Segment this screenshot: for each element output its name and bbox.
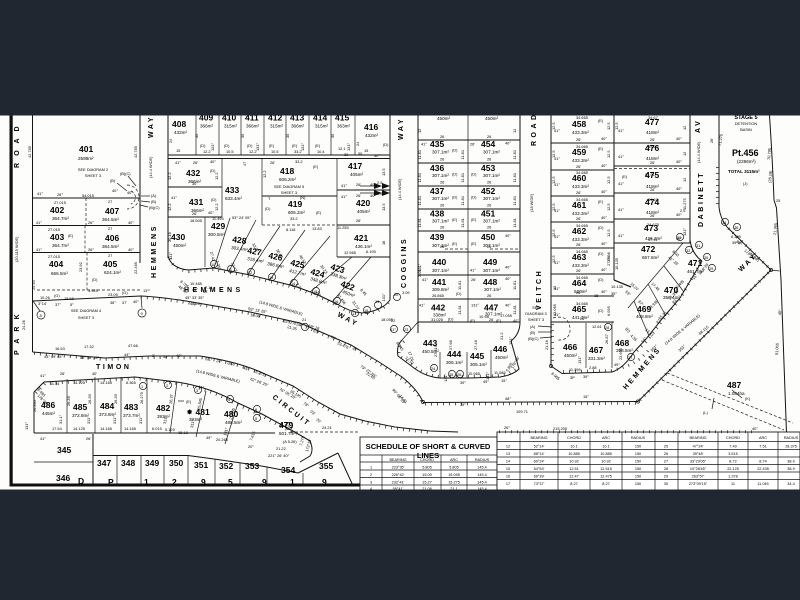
svg-text:69°39': 69°39' [534, 475, 545, 479]
svg-text:RADIUS: RADIUS [784, 436, 799, 440]
svg-text:(A): (A) [530, 324, 536, 329]
svg-text:34.675: 34.675 [647, 222, 659, 227]
svg-text:307.1m²: 307.1m² [483, 196, 500, 201]
svg-text:11.81: 11.81 [512, 305, 517, 314]
svg-text:354: 354 [281, 465, 295, 475]
svg-text:12.5: 12.5 [614, 122, 619, 130]
svg-text:5: 5 [255, 416, 257, 421]
svg-text:9: 9 [141, 311, 143, 316]
svg-text:150: 150 [635, 452, 641, 456]
svg-text:11.81: 11.81 [512, 218, 517, 227]
svg-text:407: 407 [105, 206, 119, 216]
svg-text:(D): (D) [471, 194, 477, 199]
svg-text:P: P [108, 477, 114, 487]
svg-text:450: 450 [481, 232, 495, 242]
svg-text:15: 15 [176, 148, 180, 153]
svg-text:3.515: 3.515 [728, 452, 738, 456]
svg-text:472: 472 [641, 244, 655, 254]
svg-text:145.4: 145.4 [477, 481, 487, 485]
svg-text:12.565: 12.565 [344, 250, 356, 255]
svg-text:26.87: 26.87 [604, 334, 609, 344]
svg-text:3.945: 3.945 [88, 288, 98, 293]
svg-text:23.935: 23.935 [618, 348, 623, 360]
svg-text:11: 11 [228, 267, 232, 272]
svg-text:49°: 49° [206, 435, 212, 440]
svg-text:54.015: 54.015 [82, 193, 94, 198]
svg-text:39°07': 39°07' [732, 240, 743, 245]
svg-text:42.785: 42.785 [133, 146, 138, 158]
svg-text:26': 26' [650, 137, 655, 142]
svg-text:7.49: 7.49 [729, 445, 736, 449]
svg-text:40°: 40° [505, 264, 511, 269]
svg-text:7: 7 [287, 424, 289, 429]
svg-text:12: 12 [682, 126, 687, 130]
svg-text:21.2: 21.2 [499, 332, 504, 340]
svg-text:WAY: WAY [398, 117, 405, 140]
svg-text:41°: 41° [341, 194, 347, 199]
svg-text:363m²: 363m² [337, 124, 350, 129]
svg-text:26': 26' [580, 316, 585, 321]
svg-text:27.98: 27.98 [448, 340, 453, 350]
svg-text:1: 1 [144, 477, 149, 487]
svg-text:21.22: 21.22 [276, 446, 286, 451]
svg-text:59° 48' 15°: 59° 48' 15° [80, 355, 99, 360]
svg-text:41°: 41° [40, 373, 46, 378]
svg-text:26': 26' [193, 160, 198, 165]
svg-text:(D): (D) [598, 308, 604, 313]
svg-text:20.265: 20.265 [216, 437, 228, 442]
svg-text:450m²: 450m² [437, 116, 450, 121]
svg-text:41°: 41° [175, 160, 181, 165]
svg-text:(D): (D) [456, 291, 462, 296]
svg-text:31.1°: 31.1° [58, 414, 63, 424]
svg-text:40': 40' [92, 371, 97, 376]
svg-text:COGGINS: COGGINS [401, 237, 408, 288]
svg-text:8.72: 8.72 [729, 460, 736, 464]
svg-text:12.5: 12.5 [606, 229, 611, 237]
svg-text:40°: 40° [505, 140, 511, 145]
svg-text:21.365: 21.365 [772, 223, 778, 235]
svg-text:40°: 40° [601, 241, 607, 246]
svg-text:22: 22 [391, 318, 395, 323]
svg-text:(B)(C): (B)(C) [528, 336, 539, 341]
svg-text:40°: 40° [513, 318, 519, 323]
svg-text:34.665: 34.665 [576, 115, 588, 120]
svg-text:40°: 40° [128, 247, 134, 252]
svg-text:307.1m²: 307.1m² [432, 149, 449, 154]
svg-text:26: 26 [457, 372, 461, 377]
svg-text:15: 15 [552, 286, 557, 290]
svg-text:8.27: 8.27 [570, 482, 577, 486]
svg-text:(18 WIDE): (18 WIDE) [529, 193, 534, 212]
svg-text:307.1m²: 307.1m² [483, 219, 500, 224]
svg-text:403: 403 [50, 232, 64, 242]
svg-text:(E): (E) [598, 118, 604, 123]
svg-text:11.81: 11.81 [460, 196, 465, 205]
svg-text:DABINETT: DABINETT [698, 171, 705, 227]
svg-text:11.275: 11.275 [682, 198, 687, 210]
svg-text:432: 432 [186, 168, 200, 178]
svg-text:40°: 40° [133, 299, 139, 304]
svg-text:401: 401 [79, 144, 93, 154]
svg-text:488.5m²: 488.5m² [225, 420, 242, 425]
svg-text:315m²: 315m² [224, 124, 237, 129]
svg-text:22.465: 22.465 [133, 262, 138, 274]
svg-text:(E): (E) [269, 143, 275, 148]
svg-text:41°: 41° [36, 247, 42, 252]
svg-text:307.1m²: 307.1m² [483, 149, 500, 154]
svg-text:404: 404 [49, 259, 63, 269]
svg-text:34.665: 34.665 [576, 249, 588, 254]
svg-text:150: 150 [635, 445, 641, 449]
svg-text:(E): (E) [186, 399, 192, 404]
svg-text:8: 8 [40, 313, 42, 318]
svg-text:12.61: 12.61 [592, 324, 602, 329]
svg-text:16.53: 16.53 [55, 346, 65, 351]
svg-text:33.2: 33.2 [295, 159, 303, 164]
svg-text:487: 487 [727, 380, 741, 390]
svg-text:43° 09' 45°: 43° 09' 45° [44, 354, 63, 359]
svg-text:435: 435 [430, 139, 444, 149]
svg-text:40°: 40° [676, 159, 682, 164]
svg-text:64°53': 64°53' [534, 467, 545, 471]
svg-text:14.165: 14.165 [124, 426, 136, 431]
svg-text:12.2: 12.2 [167, 172, 172, 180]
svg-text:307.1m²: 307.1m² [483, 173, 500, 178]
svg-text:(20.115 WIDE): (20.115 WIDE) [14, 236, 19, 262]
svg-text:11: 11 [731, 482, 735, 486]
svg-text:34.4: 34.4 [787, 482, 794, 486]
svg-text:TOTAL 3115m²: TOTAL 3115m² [728, 169, 760, 174]
svg-text:131°: 131° [255, 143, 260, 151]
svg-text:12.5: 12.5 [606, 122, 611, 130]
svg-text:14.165: 14.165 [100, 426, 112, 431]
svg-text:9: 9 [322, 477, 327, 487]
svg-text:345: 345 [57, 445, 71, 455]
svg-text:331.3m²: 331.3m² [588, 356, 605, 361]
svg-text:11.81: 11.81 [460, 150, 465, 159]
svg-text:24.21: 24.21 [322, 425, 332, 430]
svg-text:40°: 40° [676, 136, 682, 141]
svg-text:12.5: 12.5 [551, 203, 556, 211]
svg-text:606.2m²: 606.2m² [279, 177, 296, 182]
svg-text:11.81: 11.81 [512, 281, 517, 290]
svg-text:437: 437 [430, 186, 444, 196]
svg-text:38.9: 38.9 [787, 467, 794, 471]
svg-text:29: 29 [664, 475, 668, 479]
svg-text:34.665: 34.665 [576, 197, 588, 202]
svg-text:11.81: 11.81 [460, 173, 465, 182]
svg-text:366m²: 366m² [200, 124, 213, 129]
svg-text:1: 1 [290, 477, 295, 487]
svg-text:307.1m²: 307.1m² [432, 268, 449, 273]
svg-text:ROAD: ROAD [531, 111, 538, 146]
svg-text:40°: 40° [601, 189, 607, 194]
svg-text:12: 12 [506, 445, 510, 449]
svg-text:34.67: 34.67 [648, 144, 658, 149]
svg-text:448: 448 [483, 277, 497, 287]
svg-text:41°: 41° [171, 195, 177, 200]
svg-text:350: 350 [169, 458, 183, 468]
svg-text:27.48: 27.48 [473, 340, 478, 350]
svg-text:34.665: 34.665 [576, 144, 588, 149]
svg-text:1: 1 [141, 384, 143, 389]
svg-text:SHEET 3: SHEET 3 [85, 173, 101, 178]
svg-text:49°: 49° [614, 362, 620, 367]
svg-text:223°35': 223°35' [392, 466, 405, 470]
svg-text:60°24': 60°24' [534, 460, 545, 464]
svg-text:11.81: 11.81 [512, 196, 517, 205]
svg-text:17.54: 17.54 [52, 426, 63, 431]
svg-text:440: 440 [432, 257, 446, 267]
svg-text:449: 449 [483, 257, 497, 267]
svg-text:416: 416 [364, 122, 378, 132]
svg-text:26.275: 26.275 [139, 392, 144, 404]
svg-text:27: 27 [664, 460, 668, 464]
svg-text:(B): (B) [151, 199, 157, 204]
svg-text:40°: 40° [112, 188, 118, 193]
svg-text:(E): (E) [452, 241, 458, 246]
svg-text:(N): (N) [300, 195, 306, 200]
svg-text:418: 418 [280, 166, 294, 176]
svg-text:15°: 15° [501, 378, 507, 383]
svg-text:3.09: 3.09 [417, 269, 422, 277]
svg-text:37°: 37° [55, 302, 61, 307]
svg-text:454: 454 [481, 139, 495, 149]
svg-text:37.96: 37.96 [606, 252, 611, 262]
svg-text:91.065: 91.065 [774, 343, 780, 355]
svg-text:352: 352 [219, 461, 233, 471]
svg-text:41°: 41° [618, 207, 624, 212]
svg-text:408: 408 [172, 119, 186, 129]
svg-text:ARC: ARC [450, 458, 458, 462]
svg-text:22.125: 22.125 [727, 467, 739, 471]
svg-text:88°14': 88°14' [534, 452, 545, 456]
svg-text:2: 2 [172, 477, 177, 487]
svg-text:CHORD: CHORD [726, 436, 740, 440]
svg-text:450m²: 450m² [173, 243, 186, 248]
svg-text:41°: 41° [618, 181, 624, 186]
svg-text:131°: 131° [346, 143, 351, 151]
svg-text:(G): (G) [54, 293, 60, 298]
svg-text:28: 28 [605, 325, 609, 330]
svg-text:14.125: 14.125 [73, 426, 85, 431]
svg-text:19: 19 [375, 299, 379, 304]
svg-text:10°28'45": 10°28'45" [690, 467, 707, 471]
svg-text:(E): (E) [496, 318, 502, 323]
svg-text:12.5: 12.5 [606, 203, 611, 211]
svg-text:26': 26' [576, 268, 581, 273]
svg-text:5.805: 5.805 [422, 466, 432, 470]
svg-text:37.11: 37.11 [648, 237, 657, 242]
svg-text:17.055: 17.055 [500, 313, 512, 318]
svg-text:15: 15 [594, 293, 598, 298]
svg-text:145.4: 145.4 [477, 473, 487, 477]
svg-text:RADIUS: RADIUS [631, 436, 646, 440]
svg-text:445m²: 445m² [42, 411, 55, 416]
svg-text:40°: 40° [505, 233, 511, 238]
svg-text:BASIN: BASIN [740, 127, 752, 132]
svg-text:307.1m²: 307.1m² [432, 196, 449, 201]
svg-text:11.81: 11.81 [460, 218, 465, 227]
svg-text:666.5m²: 666.5m² [51, 271, 68, 276]
svg-text:40°: 40° [505, 302, 511, 307]
svg-text:483: 483 [124, 402, 138, 412]
svg-text:12.2: 12.2 [214, 172, 219, 180]
svg-text:34.665: 34.665 [576, 170, 588, 175]
svg-text:27: 27 [108, 253, 112, 258]
svg-text:53° 24' 05°: 53° 24' 05° [232, 215, 251, 220]
svg-text:2.88: 2.88 [589, 365, 597, 370]
svg-text:41°: 41° [618, 233, 624, 238]
svg-text:20°: 20° [248, 444, 254, 449]
svg-text:11.81: 11.81 [417, 150, 422, 159]
svg-text:40°: 40° [374, 153, 380, 158]
svg-text:(D): (D) [92, 277, 98, 282]
svg-text:364.5m²: 364.5m² [102, 244, 119, 249]
svg-text:12: 12 [417, 129, 422, 133]
svg-text:215.205: 215.205 [553, 426, 567, 431]
svg-text:433.3m²: 433.3m² [572, 184, 589, 189]
svg-text:232°41': 232°41' [392, 481, 405, 485]
svg-text:307.1m²: 307.1m² [432, 173, 449, 178]
svg-text:SEE DIAGRAM 5: SEE DIAGRAM 5 [274, 184, 304, 189]
svg-text:(14.4 WIDE): (14.4 WIDE) [696, 141, 701, 163]
svg-text:17: 17 [506, 482, 510, 486]
svg-text:1.378: 1.378 [728, 475, 738, 479]
svg-text:12: 12 [682, 152, 687, 156]
svg-text:5.805: 5.805 [449, 466, 459, 470]
svg-text:49°: 49° [777, 309, 782, 316]
svg-text:453: 453 [481, 163, 495, 173]
svg-text:39°: 39° [460, 402, 466, 407]
svg-text:39°: 39° [460, 380, 466, 385]
svg-text:26: 26 [487, 293, 491, 298]
svg-text:40°: 40° [176, 353, 182, 358]
svg-text:26.37: 26.37 [168, 394, 174, 404]
svg-text:364.5m²: 364.5m² [102, 217, 119, 222]
svg-text:26: 26 [440, 244, 444, 249]
svg-text:13.085: 13.085 [552, 304, 557, 316]
svg-text:10.98: 10.98 [479, 314, 489, 319]
svg-text:10.135: 10.135 [614, 258, 619, 270]
svg-text:SEE: SEE [532, 305, 540, 310]
svg-text:40°: 40° [210, 159, 216, 164]
svg-text:27: 27 [108, 226, 112, 231]
svg-text:AV: AV [695, 119, 702, 133]
svg-text:(D): (D) [598, 225, 604, 230]
svg-text:(D): (D) [452, 194, 458, 199]
svg-text:48°: 48° [505, 396, 511, 401]
svg-text:28: 28 [664, 467, 668, 471]
svg-text:5: 5 [228, 477, 233, 487]
svg-text:405m²: 405m² [350, 172, 363, 177]
svg-text:150: 150 [635, 460, 641, 464]
svg-text:402: 402 [50, 205, 64, 215]
svg-text:27.015: 27.015 [48, 227, 60, 232]
svg-text:26': 26' [576, 164, 581, 169]
svg-text:28.375: 28.375 [785, 445, 797, 449]
svg-text:33': 33' [203, 289, 208, 294]
svg-text:(D): (D) [448, 316, 454, 321]
svg-text:(G): (G) [122, 290, 128, 295]
svg-text:311°: 311° [86, 416, 91, 424]
svg-text:33.2: 33.2 [290, 216, 298, 221]
svg-text:41°: 41° [419, 302, 425, 307]
svg-text:26.865: 26.865 [432, 293, 444, 298]
svg-text:40°: 40° [601, 289, 607, 294]
svg-text:446: 446 [493, 344, 507, 354]
svg-text:(E): (E) [470, 318, 476, 323]
svg-text:D: D [78, 476, 84, 486]
svg-text:40°: 40° [601, 136, 607, 141]
svg-text:34.665: 34.665 [576, 275, 588, 280]
svg-text:633.4m²: 633.4m² [225, 196, 242, 201]
svg-text:26: 26 [664, 452, 668, 456]
svg-text:15.88: 15.88 [64, 296, 74, 301]
svg-text:26': 26' [471, 277, 476, 282]
svg-text:26: 26 [440, 179, 444, 184]
svg-text:40°: 40° [601, 215, 607, 220]
svg-text:(E): (E) [471, 217, 477, 222]
svg-text:11.045: 11.045 [757, 482, 768, 486]
svg-text:Pt.456: Pt.456 [732, 148, 759, 158]
svg-text:10.26: 10.26 [40, 295, 50, 300]
svg-text:309.8m²: 309.8m² [432, 287, 449, 292]
svg-text:(B): (B) [530, 330, 536, 335]
svg-text:45°: 45° [192, 287, 198, 292]
svg-text:36: 36 [734, 225, 738, 230]
svg-text:7.51: 7.51 [759, 445, 766, 449]
svg-text:51.91: 51.91 [645, 172, 655, 177]
svg-text:131°: 131° [24, 422, 29, 430]
svg-text:40°: 40° [127, 190, 133, 195]
svg-text:131°: 131° [471, 302, 479, 307]
svg-text:34.665: 34.665 [576, 223, 588, 228]
svg-text:12.5: 12.5 [606, 176, 611, 184]
svg-text:10.4: 10.4 [317, 149, 325, 154]
svg-text:13¹°: 13¹° [143, 288, 151, 293]
svg-text:306.1m²: 306.1m² [446, 360, 463, 365]
svg-text:430: 430 [171, 232, 185, 242]
svg-text:226°42': 226°42' [392, 473, 405, 477]
svg-text:366m²: 366m² [291, 124, 304, 129]
svg-text:20.395: 20.395 [32, 400, 37, 412]
svg-text:421: 421 [354, 233, 368, 243]
svg-text:131°: 131° [381, 293, 386, 301]
svg-text:18.505: 18.505 [190, 218, 202, 223]
svg-text:40°: 40° [370, 193, 376, 198]
svg-text:12.5: 12.5 [551, 176, 556, 184]
svg-text:439: 439 [430, 232, 444, 242]
svg-text:11.81: 11.81 [417, 218, 422, 227]
svg-text:(L): (L) [703, 410, 708, 415]
svg-text:(A 5.26): (A 5.26) [283, 439, 297, 444]
svg-text:131°: 131° [300, 143, 305, 151]
svg-text:2: 2 [166, 383, 168, 388]
svg-text:26': 26' [650, 213, 655, 218]
svg-text:BEARING: BEARING [689, 436, 706, 440]
svg-text:11.81: 11.81 [417, 173, 422, 182]
svg-text:26': 26' [650, 187, 655, 192]
svg-text:10.885: 10.885 [600, 452, 612, 456]
svg-text:15.095: 15.095 [448, 473, 460, 477]
svg-text:(D): (D) [200, 143, 206, 148]
svg-text:(D): (D) [265, 206, 271, 211]
svg-text:47: 47 [242, 162, 247, 166]
svg-text:47°24': 47°24' [693, 445, 704, 449]
svg-text:(E): (E) [313, 164, 319, 169]
